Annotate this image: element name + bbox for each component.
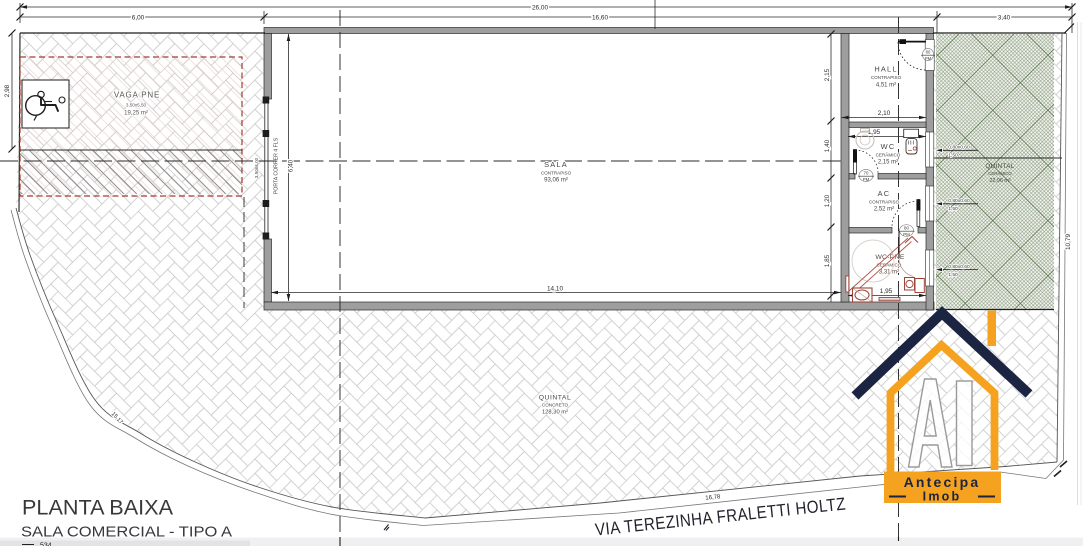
svg-text:80: 80	[904, 226, 909, 231]
svg-text:Imob: Imob	[923, 490, 962, 504]
svg-text:HALL: HALL	[874, 65, 897, 74]
svg-text:2,52 m²: 2,52 m²	[874, 207, 894, 213]
svg-text:70: 70	[864, 171, 869, 176]
svg-text:PM: PM	[925, 56, 932, 61]
svg-text:0,80x0,60: 0,80x0,60	[948, 198, 970, 204]
svg-text:128,30 m²: 128,30 m²	[542, 410, 568, 416]
svg-text:26,00: 26,00	[532, 4, 548, 11]
svg-text:CONTRAPISO: CONTRAPISO	[871, 75, 902, 80]
svg-text:1,20: 1,20	[824, 194, 831, 207]
svg-text:CERÂMICO: CERÂMICO	[876, 152, 901, 158]
svg-text:1,85: 1,85	[824, 254, 831, 267]
svg-text:1,50: 1,50	[948, 206, 958, 212]
svg-text:1,50: 1,50	[948, 272, 958, 278]
svg-text:AC: AC	[878, 189, 891, 198]
svg-text:Antecipa: Antecipa	[904, 474, 981, 490]
svg-text:6,00: 6,00	[132, 14, 145, 21]
svg-text:16,60: 16,60	[592, 14, 608, 21]
svg-text:0,80x0,60: 0,80x0,60	[948, 264, 970, 270]
svg-text:3,40: 3,40	[998, 14, 1011, 21]
svg-text:CONTRAPISO: CONTRAPISO	[541, 171, 572, 176]
svg-text:22,96 m²: 22,96 m²	[989, 178, 1010, 184]
svg-text:PORTA CORRER 4 FLS: PORTA CORRER 4 FLS	[274, 137, 280, 194]
svg-text:10,79: 10,79	[1065, 234, 1072, 250]
svg-text:SALA: SALA	[544, 160, 568, 169]
svg-text:CONTRAPISO: CONTRAPISO	[869, 200, 900, 205]
svg-text:1,95: 1,95	[880, 288, 893, 295]
svg-text:VAGA PNE: VAGA PNE	[114, 91, 160, 100]
svg-text:6,40: 6,40	[288, 159, 295, 172]
svg-text:PM: PM	[903, 232, 910, 237]
svg-text:0,80x0,60: 0,80x0,60	[948, 145, 970, 151]
svg-text:80: 80	[926, 50, 931, 55]
svg-text:2,15 m²: 2,15 m²	[878, 160, 898, 166]
svg-text:4,51 m²: 4,51 m²	[876, 83, 896, 89]
svg-text:1,40: 1,40	[824, 139, 831, 152]
svg-text:14,10: 14,10	[547, 285, 563, 292]
svg-text:2,15: 2,15	[824, 68, 831, 81]
svg-text:2,98: 2,98	[4, 84, 11, 97]
svg-text:CONCRETO: CONCRETO	[542, 403, 569, 408]
svg-text:19,25 m²: 19,25 m²	[124, 111, 148, 117]
svg-text:QUINTAL: QUINTAL	[985, 163, 1014, 170]
svg-text:WC-PNE: WC-PNE	[875, 254, 905, 261]
svg-text:SALA COMERCIAL - TIPO A: SALA COMERCIAL - TIPO A	[21, 524, 232, 541]
svg-text:1,50: 1,50	[948, 153, 958, 159]
svg-text:534: 534	[40, 543, 52, 546]
svg-text:CERÂMICO: CERÂMICO	[988, 171, 1012, 176]
svg-text:2,10: 2,10	[878, 110, 891, 117]
svg-text:3,50x4,00: 3,50x4,00	[254, 157, 259, 178]
svg-text:QUINTAL: QUINTAL	[539, 395, 571, 402]
svg-text:PM: PM	[863, 177, 870, 182]
svg-text:PLANTA BAIXA: PLANTA BAIXA	[22, 496, 174, 520]
svg-text:WC: WC	[881, 142, 896, 151]
svg-text:3,50x5,50: 3,50x5,50	[126, 103, 147, 108]
svg-text:93,06 m²: 93,06 m²	[544, 178, 568, 184]
